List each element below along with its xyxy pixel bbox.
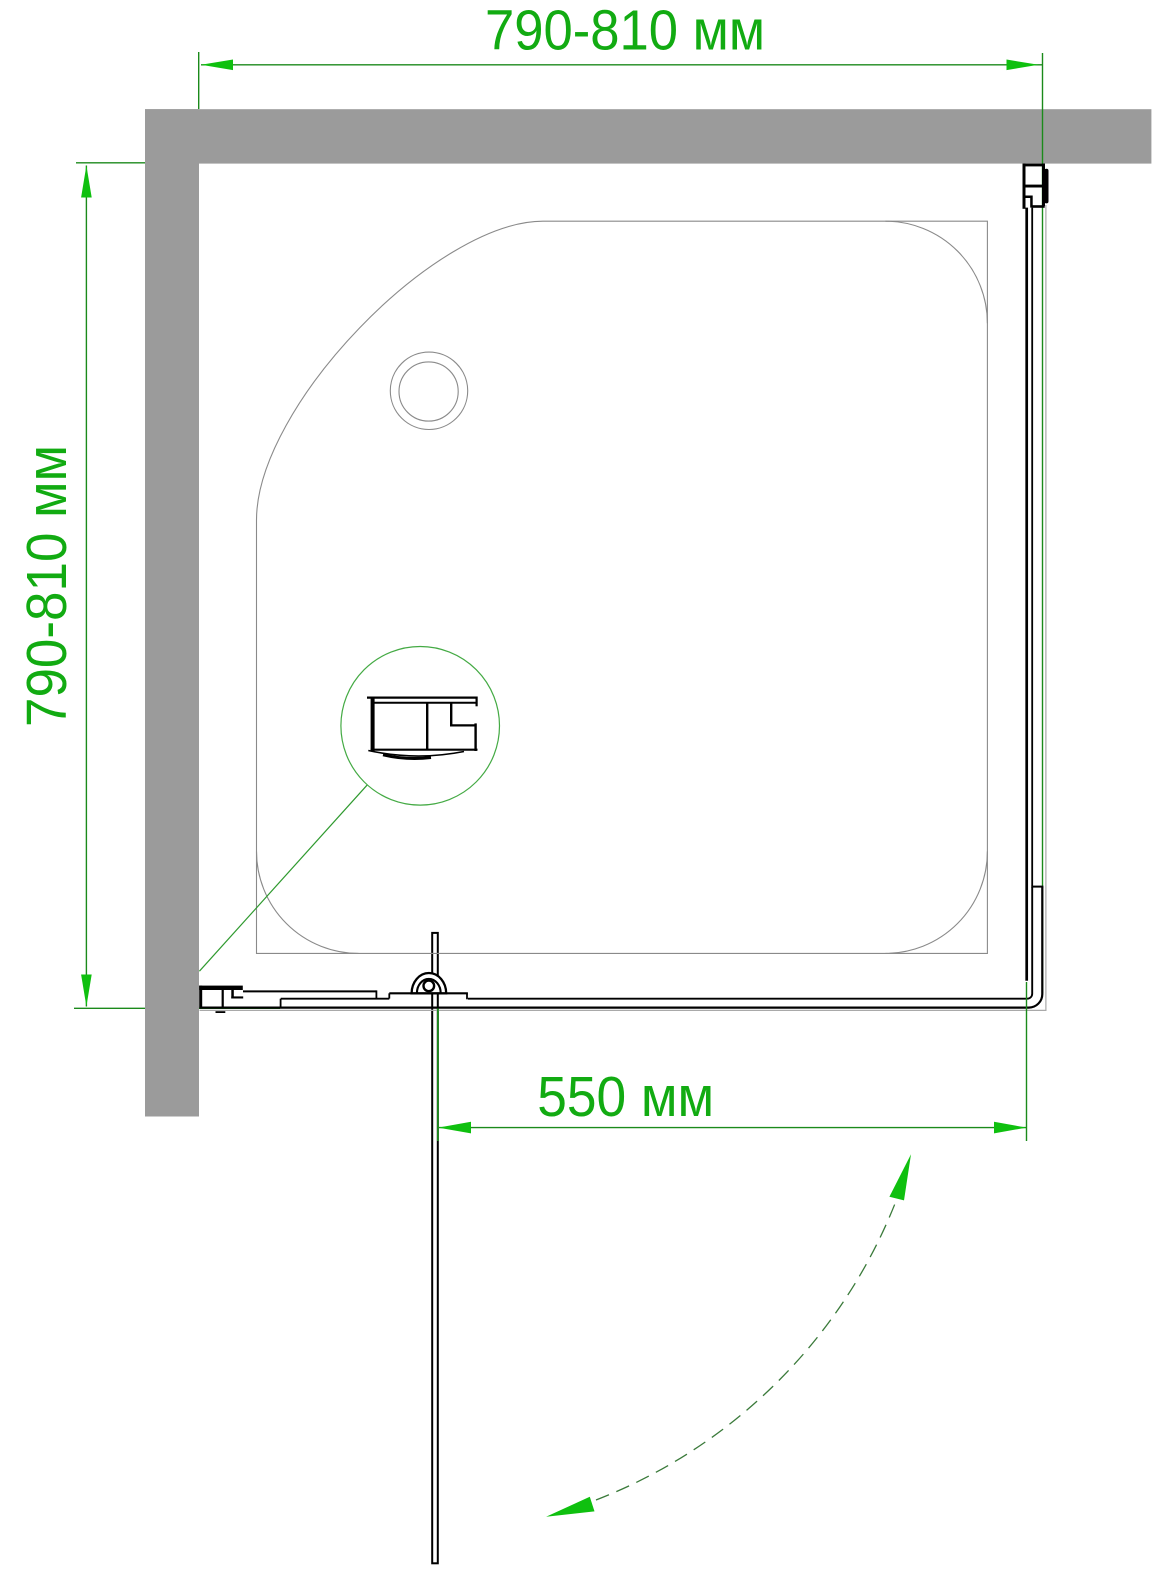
svg-text:550 мм: 550 мм: [537, 1065, 714, 1129]
svg-text:790-810 мм: 790-810 мм: [485, 0, 765, 63]
svg-text:790-810 мм: 790-810 мм: [15, 445, 79, 727]
